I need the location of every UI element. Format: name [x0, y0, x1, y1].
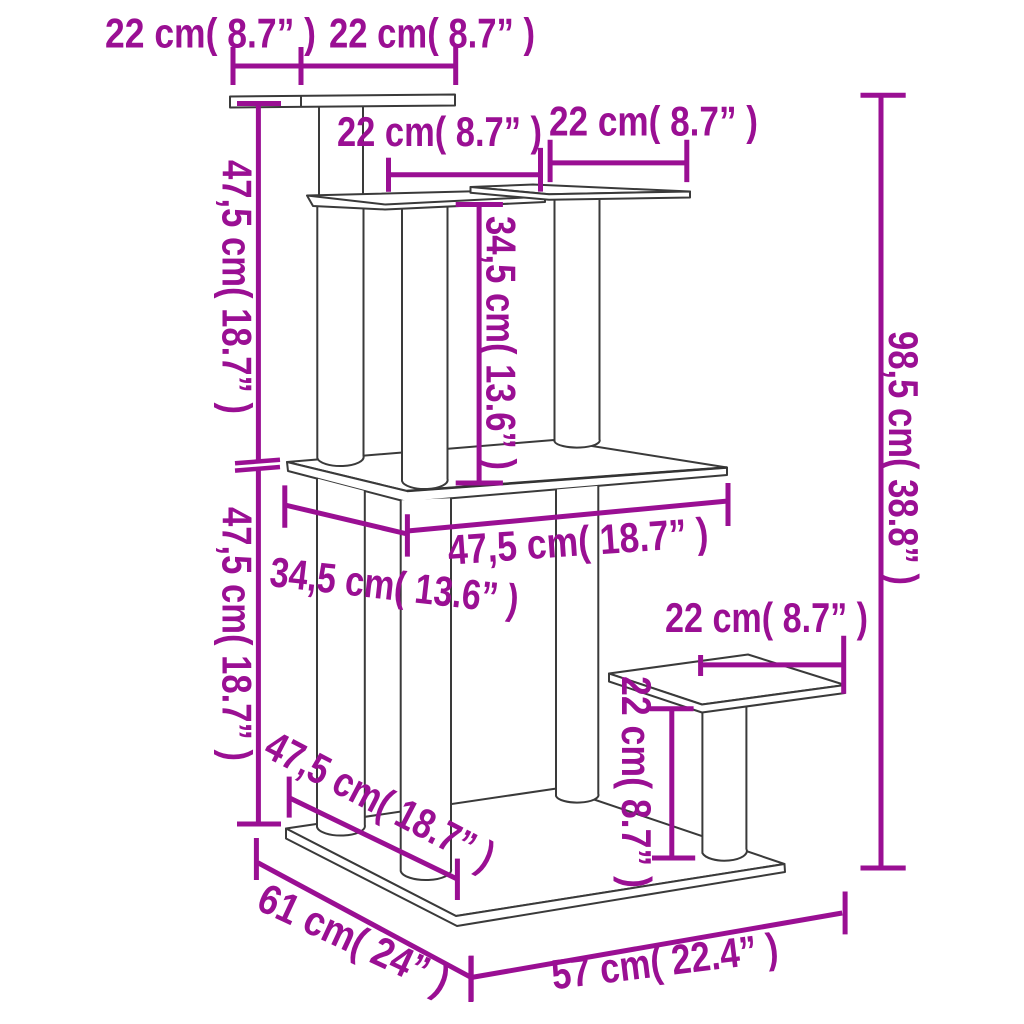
svg-text:98,5 cm( 38.8” ): 98,5 cm( 38.8” ) [880, 331, 927, 585]
svg-text:47,5 cm( 18.7” ): 47,5 cm( 18.7” ) [214, 160, 261, 414]
svg-text:22 cm( 8.7” ): 22 cm( 8.7” ) [337, 108, 542, 155]
svg-text:47,5 cm( 18.7” ): 47,5 cm( 18.7” ) [214, 507, 261, 761]
svg-text:22 cm( 8.7” ): 22 cm( 8.7” ) [105, 10, 316, 57]
svg-text:22 cm( 8.7” ): 22 cm( 8.7” ) [665, 594, 868, 641]
svg-text:34,5 cm( 13.6” ): 34,5 cm( 13.6” ) [478, 216, 525, 470]
svg-text:22 cm( 8.7” ): 22 cm( 8.7” ) [613, 676, 660, 888]
svg-text:22 cm( 8.7” ): 22 cm( 8.7” ) [329, 10, 535, 57]
svg-text:22 cm( 8.7” ): 22 cm( 8.7” ) [549, 98, 758, 145]
